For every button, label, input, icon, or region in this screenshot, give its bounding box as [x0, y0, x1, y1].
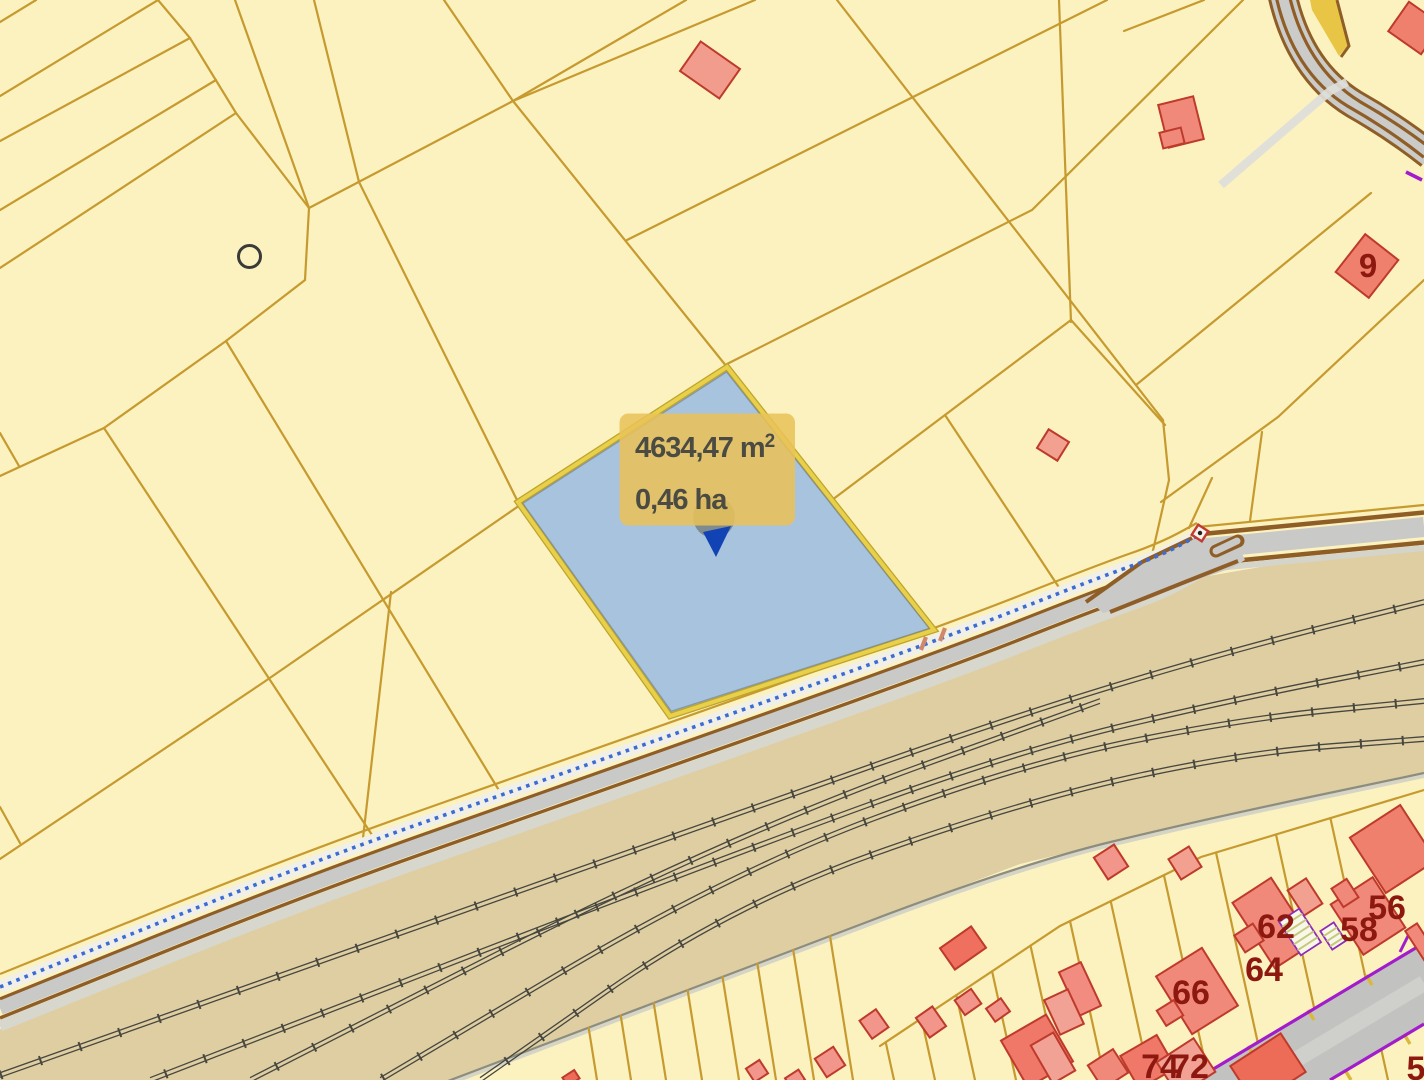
svg-text:5: 5	[1407, 1050, 1424, 1080]
svg-text:9: 9	[1359, 247, 1377, 284]
svg-text:56: 56	[1368, 889, 1406, 927]
svg-text:72: 72	[1171, 1048, 1209, 1080]
svg-text:4634,47 m2: 4634,47 m2	[635, 431, 775, 464]
svg-text:62: 62	[1257, 908, 1295, 946]
svg-text:66: 66	[1172, 974, 1210, 1012]
svg-text:64: 64	[1245, 951, 1283, 989]
svg-text:0,46 ha: 0,46 ha	[635, 484, 728, 516]
